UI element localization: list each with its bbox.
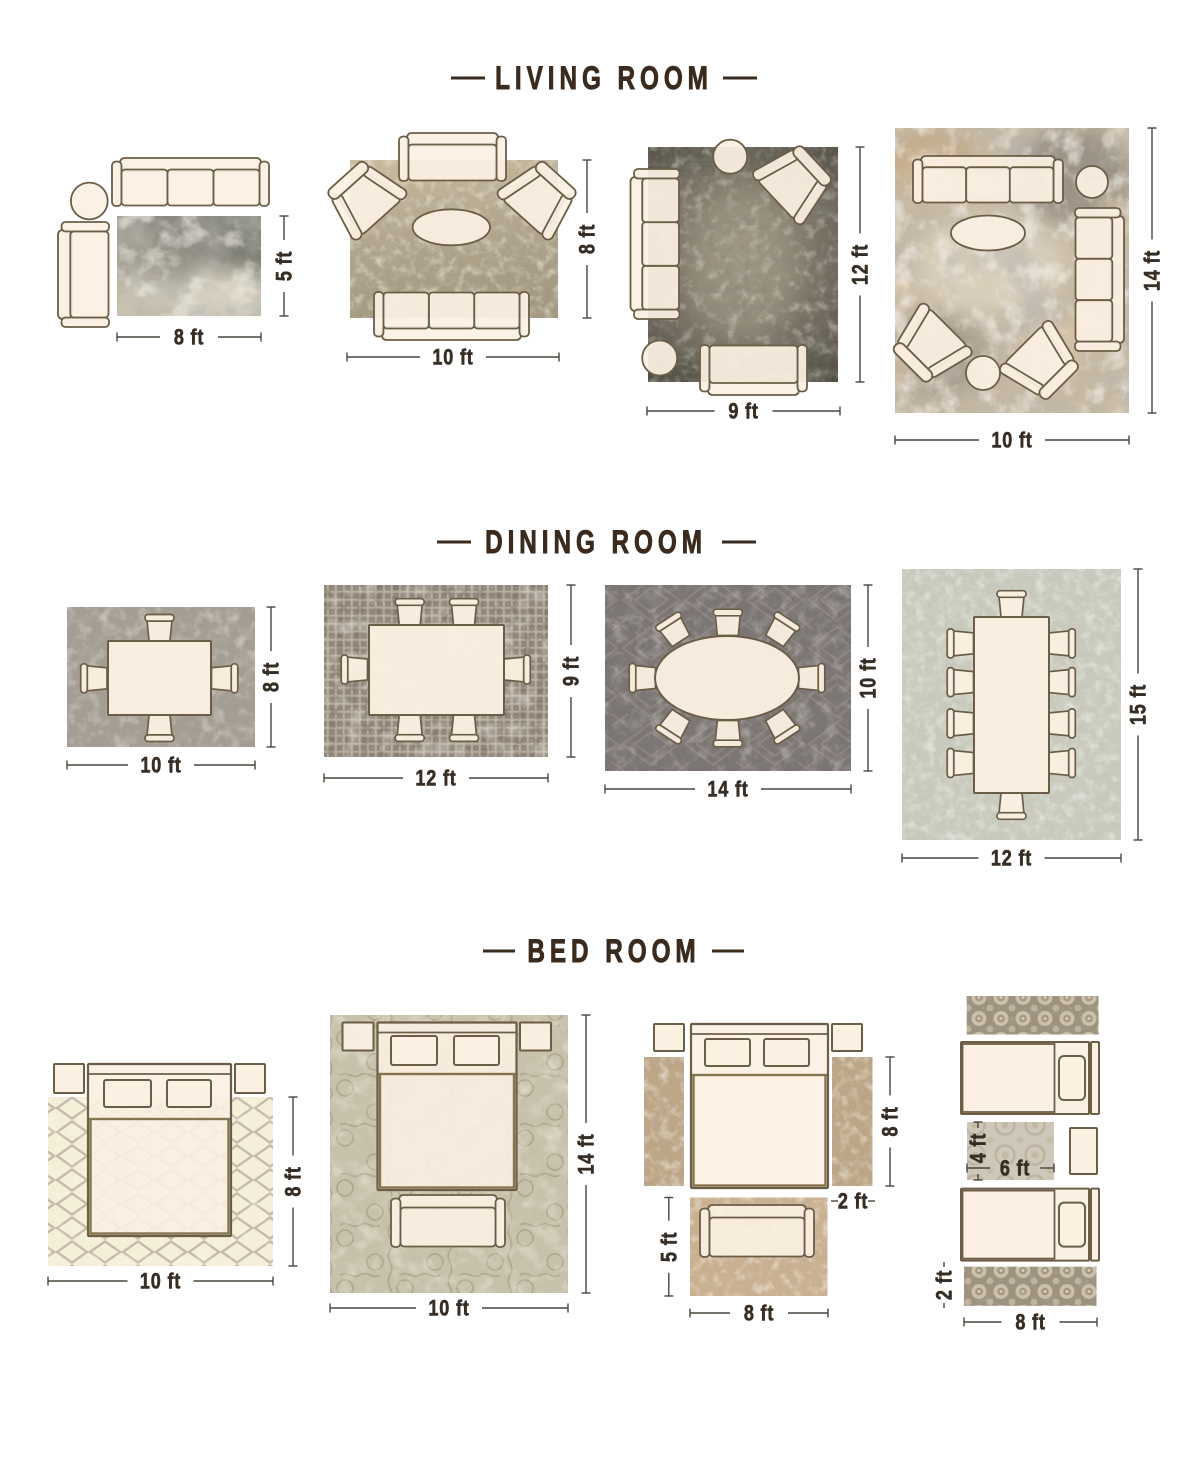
svg-text:8 ft: 8 ft <box>260 662 284 692</box>
svg-text:14 ft: 14 ft <box>575 1133 599 1174</box>
svg-text:14 ft: 14 ft <box>707 778 748 802</box>
svg-text:4 ft: 4 ft <box>967 1133 991 1163</box>
svg-text:LIVING ROOM: LIVING ROOM <box>495 61 713 97</box>
svg-text:12 ft: 12 ft <box>415 767 456 791</box>
svg-text:8 ft: 8 ft <box>576 224 600 254</box>
svg-text:2 ft: 2 ft <box>838 1190 868 1214</box>
svg-text:12 ft: 12 ft <box>991 847 1032 871</box>
svg-text:10 ft: 10 ft <box>140 754 181 778</box>
svg-text:5 ft: 5 ft <box>273 251 297 281</box>
svg-text:2 ft: 2 ft <box>933 1270 957 1300</box>
svg-text:6 ft: 6 ft <box>1000 1157 1030 1181</box>
svg-text:14 ft: 14 ft <box>1141 250 1165 291</box>
svg-text:5 ft: 5 ft <box>658 1232 682 1262</box>
svg-text:8 ft: 8 ft <box>282 1166 306 1196</box>
svg-text:9 ft: 9 ft <box>560 656 584 686</box>
svg-text:15 ft: 15 ft <box>1127 684 1151 725</box>
svg-text:8 ft: 8 ft <box>1015 1311 1045 1335</box>
svg-text:10 ft: 10 ft <box>432 346 473 370</box>
svg-text:8 ft: 8 ft <box>744 1302 774 1326</box>
svg-text:9 ft: 9 ft <box>728 400 758 424</box>
svg-text:8 ft: 8 ft <box>879 1106 903 1136</box>
svg-text:10 ft: 10 ft <box>140 1270 181 1294</box>
svg-text:BED ROOM: BED ROOM <box>527 934 700 970</box>
svg-text:8 ft: 8 ft <box>174 326 204 350</box>
svg-text:10 ft: 10 ft <box>857 657 881 698</box>
svg-text:10 ft: 10 ft <box>428 1297 469 1321</box>
svg-text:10 ft: 10 ft <box>991 429 1032 453</box>
svg-text:DINING ROOM: DINING ROOM <box>485 525 707 561</box>
svg-text:12 ft: 12 ft <box>849 244 873 285</box>
